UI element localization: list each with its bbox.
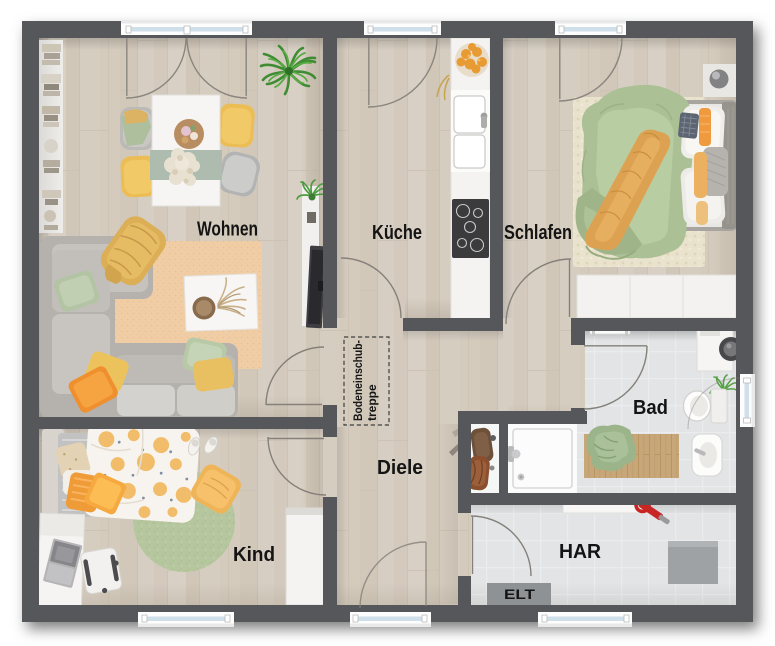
svg-text:Bad: Bad [633,397,668,419]
svg-text:Kind: Kind [233,544,275,566]
svg-text:Bodeneinschub-: Bodeneinschub- [351,340,365,421]
svg-text:treppe: treppe [365,384,379,421]
svg-text:Wohnen: Wohnen [197,219,258,241]
svg-text:Diele: Diele [377,457,423,479]
svg-text:ELT: ELT [504,586,536,602]
svg-text:Küche: Küche [372,222,422,244]
svg-text:Schlafen: Schlafen [504,222,572,244]
svg-text:HAR: HAR [559,541,602,563]
